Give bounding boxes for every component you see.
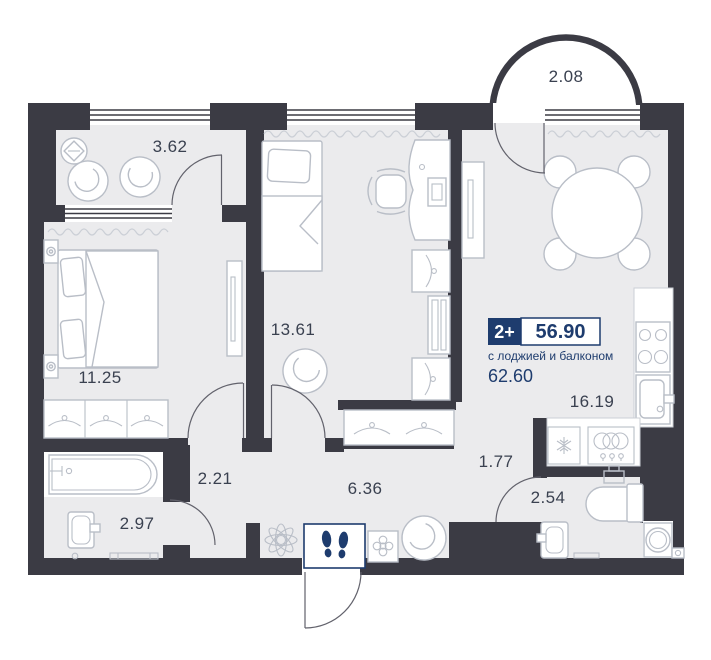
entrance-footprints [304,524,365,568]
closet-icon [412,358,450,400]
washing-machine-icon [643,521,673,558]
tv-unit-icon [227,261,242,356]
cabinet-icon [462,162,484,258]
floor-plan: 3.62 2.08 11.25 13.61 16.19 6.36 1.77 2.… [0,0,711,660]
desk-icon [409,140,450,240]
label-bedroom-2: 13.61 [271,320,316,339]
label-inner-hall: 2.21 [198,469,233,488]
dresser-icon [428,296,450,354]
door-stop [672,548,684,558]
footprints-box [304,524,365,568]
badge-rooms-label: 2+ [494,322,515,342]
side-table-icon [61,138,87,164]
double-bed-icon [44,240,158,378]
label-bedroom-1: 11.25 [78,368,121,387]
kitchen-counter [634,288,674,427]
single-bed-icon [262,141,322,271]
hall-wardrobe-icon [344,410,454,445]
label-loggia: 3.62 [153,137,188,156]
closet-icon [412,250,450,292]
label-wc: 2.54 [531,488,566,507]
wardrobe-icon [44,400,168,438]
dining-set-icon [544,156,650,270]
window-loggia-bedroom [65,205,172,222]
label-kitchen-living: 16.19 [570,392,615,411]
appliance-niche [547,418,640,466]
balcony-door-opening [493,103,545,123]
badge-subtitle: с лоджией и балконом [488,349,613,363]
window-loggia [90,105,210,125]
badge-area-total: 62.60 [488,366,533,386]
label-bathroom: 2.97 [120,514,155,533]
window-bedroom-2 [287,105,415,125]
washbasin-icon [537,522,568,558]
badge-area-main: 56.90 [535,321,585,343]
label-balcony: 2.08 [549,67,584,86]
label-hall: 6.36 [348,479,383,498]
floor-plan-canvas: 3.62 2.08 11.25 13.61 16.19 6.36 1.77 2.… [0,0,711,660]
plant-cabinet-icon [368,531,398,562]
label-corridor: 1.77 [479,452,514,471]
window-kitchen [545,105,640,125]
